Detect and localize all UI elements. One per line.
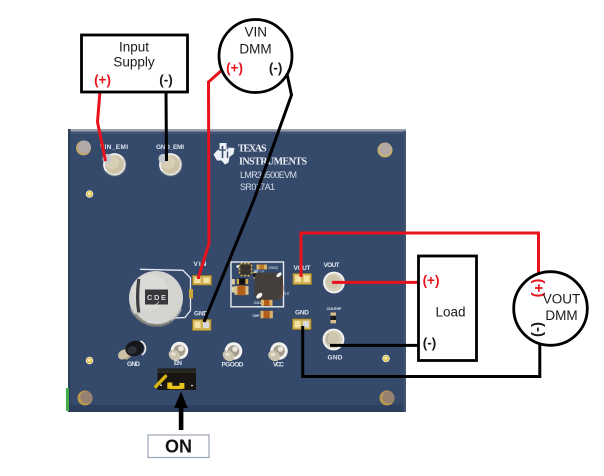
- svg-text:(-): (-): [269, 61, 283, 76]
- svg-text:(+): (+): [94, 73, 111, 88]
- svg-text:ON: ON: [165, 437, 192, 457]
- svg-text:(+): (+): [423, 273, 440, 288]
- svg-text:DMM: DMM: [545, 308, 577, 323]
- svg-text:(+): (+): [226, 61, 243, 76]
- svg-text:(-): (-): [423, 336, 437, 351]
- svg-text:CVCC: CVCC: [269, 266, 279, 270]
- svg-text:EN: EN: [174, 360, 182, 367]
- svg-text:Supply: Supply: [113, 55, 155, 70]
- svg-text:L1: L1: [285, 292, 289, 296]
- svg-text:VOUT: VOUT: [543, 292, 581, 307]
- svg-text:CBULK: CBULK: [147, 320, 160, 324]
- svg-text:CDE: CDE: [147, 293, 166, 302]
- svg-text:GND_EMI: GND_EMI: [156, 144, 184, 151]
- svg-text:INSTRUMENTS: INSTRUMENTS: [239, 157, 307, 168]
- svg-text:COUTHF: COUTHF: [327, 306, 343, 311]
- svg-text:DMM: DMM: [239, 42, 271, 57]
- svg-text:VOUT: VOUT: [324, 262, 340, 269]
- svg-text:LMR36500EVM: LMR36500EVM: [240, 170, 297, 180]
- svg-text:GND: GND: [328, 355, 343, 362]
- svg-text:PGOOD: PGOOD: [222, 362, 244, 369]
- svg-text:(-): (-): [530, 322, 547, 337]
- svg-text:CO1: CO1: [254, 301, 261, 305]
- svg-text:GND: GND: [127, 361, 140, 368]
- svg-text:GND: GND: [295, 310, 309, 317]
- svg-text:VIN: VIN: [245, 25, 268, 40]
- svg-text:TEXAS: TEXAS: [238, 144, 267, 155]
- svg-text:(-): (-): [159, 73, 173, 88]
- svg-text:VCC: VCC: [273, 362, 284, 369]
- svg-text:CHF: CHF: [253, 314, 260, 318]
- svg-text:Load: Load: [435, 305, 465, 320]
- svg-text:Input: Input: [119, 40, 149, 55]
